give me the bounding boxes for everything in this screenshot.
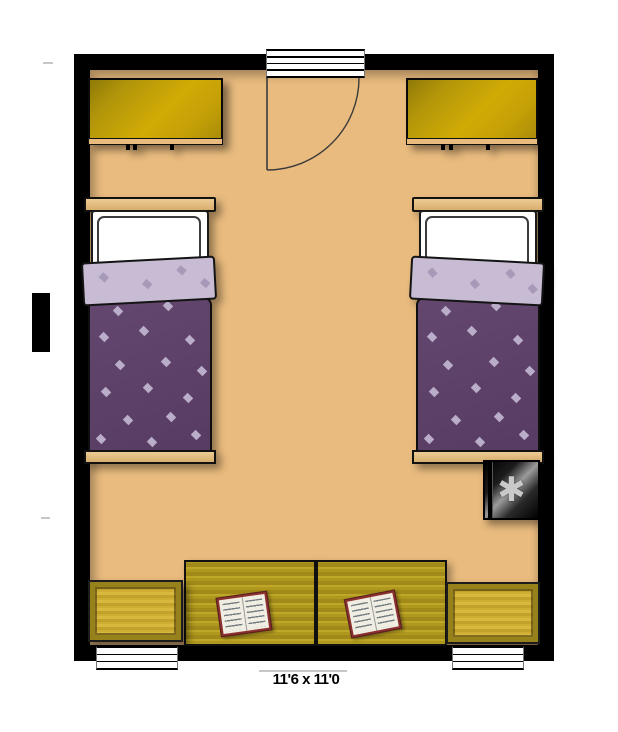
door[interactable] [266,49,365,78]
mini-fridge[interactable]: ✱ [483,460,540,520]
book-page [242,594,269,631]
ruler-tick [41,517,50,519]
diamond-motif [113,305,123,315]
bed-sheet-fold [409,256,545,307]
bed-left[interactable] [86,197,214,465]
diamond-motif [197,366,207,376]
diamond-motif [426,332,436,342]
wardrobe-front-edge [88,138,223,145]
diamond-motif [161,356,171,366]
diamond-motif [182,393,192,403]
diamond-motif [191,430,201,440]
diamond-motif [513,335,523,345]
wardrobe-handle [486,144,490,150]
diamond-motif [101,387,111,397]
diamond-motif [450,415,460,425]
diamond-motif [494,412,504,422]
wardrobe-handle [133,144,137,150]
ruler-tick [43,62,53,64]
fridge-hinge [488,462,493,518]
diamond-motif [141,279,151,289]
window-right[interactable] [452,646,524,670]
diamond-motif [166,412,176,422]
diamond-motif [163,301,173,311]
wardrobe-right[interactable] [406,78,538,140]
diamond-motif [489,356,499,366]
wardrobe-handle [170,144,174,150]
bed-right[interactable] [414,197,542,465]
diamond-motif [424,433,434,443]
wardrobe-front-edge [406,138,538,145]
wardrobe-handle [126,144,130,150]
diamond-motif [98,272,108,282]
open-book-left[interactable] [215,591,272,638]
diamond-motif [441,305,451,315]
bed-duvet [88,297,212,455]
diamond-motif [115,359,125,369]
diamond-motif [185,335,195,345]
diamond-motif [505,269,515,279]
diamond-motif [143,382,153,392]
wardrobe-handle [449,144,453,150]
diamond-motif [469,279,479,289]
diamond-motif [527,283,537,293]
diamond-motif [122,415,132,425]
diamond-motif [200,278,210,288]
diamond-motif [139,325,149,335]
nightstand-right[interactable] [446,582,540,644]
floor-plan: ✱ 11'6 x 11'0 [0,0,618,732]
diamond-motif [146,436,156,446]
bed-footboard [84,450,216,464]
diamond-motif [525,366,535,376]
radiator[interactable] [32,293,50,352]
wardrobe-handle [441,144,445,150]
snowflake-asterisk-icon: ✱ [497,473,526,507]
diamond-motif [429,387,439,397]
nightstand-left[interactable] [88,580,183,642]
diamond-motif [471,382,481,392]
diamond-motif [519,430,529,440]
diamond-motif [467,325,477,335]
bed-sheet-fold [81,256,217,307]
diamond-motif [96,433,106,443]
window-left[interactable] [96,646,178,670]
room-dimensions-label: 11'6 x 11'0 [246,671,366,688]
diamond-motif [510,393,520,403]
diamond-motif [98,332,108,342]
diamond-motif [443,359,453,369]
bed-duvet [416,297,540,455]
diamond-motif [176,265,186,275]
diamond-motif [474,436,484,446]
wardrobe-left[interactable] [88,78,223,140]
diamond-motif [427,267,437,277]
